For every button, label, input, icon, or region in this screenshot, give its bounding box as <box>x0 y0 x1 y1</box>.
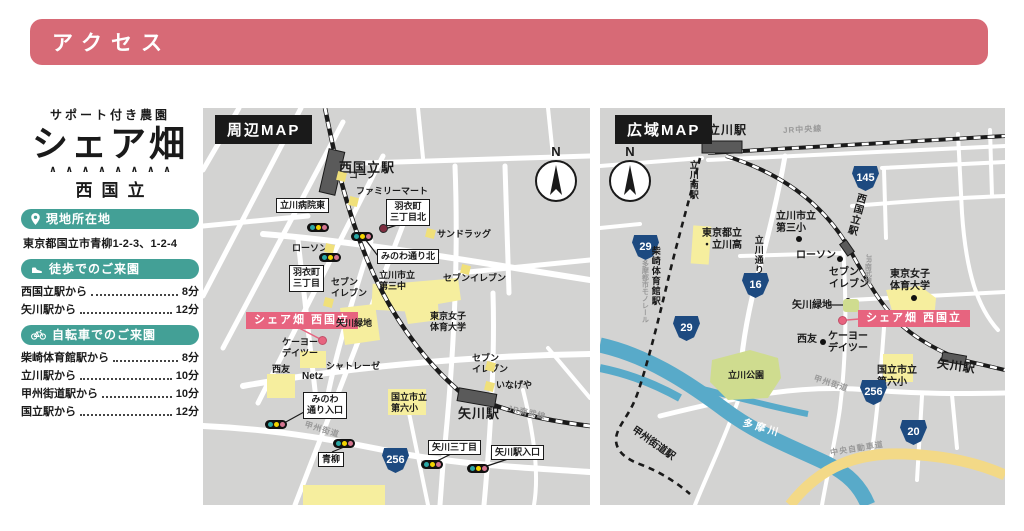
farm-address: 東京都国立市青柳1-2-3、1-2-4 <box>23 235 199 251</box>
brand-location: 西国立 <box>21 176 199 201</box>
route-shield-145: 145 <box>852 166 879 191</box>
poi-daisan-elementary: 立川市立 第三小 <box>776 211 816 235</box>
poi-chateraise: シャトレーゼ <box>326 361 380 372</box>
jr-nambu-line-label: JR南武線 <box>506 404 546 422</box>
poi-dairoku-elementary: 国立市立 第六小 <box>391 392 427 414</box>
traffic-signal <box>351 232 373 241</box>
coop-marker <box>336 171 347 182</box>
traffic-signal <box>265 420 287 429</box>
intersection-tachikawa-hospital-east: 立川病院東 <box>276 198 329 213</box>
sidebar: サポート付き農園 シェア畑 ∧∧∧∧∧∧∧∧ 西国立 現地所在地 東京都国立市青… <box>21 106 199 421</box>
local-map-title: 周辺MAP <box>215 115 312 144</box>
station-koshukaido: 甲州街道駅 <box>629 425 677 464</box>
jr-chuo-line-label: JR中央線 <box>783 124 823 136</box>
route-shield-29b: 29 <box>673 316 700 341</box>
compass-needle-icon <box>535 160 577 202</box>
route-shield-16: 16 <box>742 273 769 298</box>
bicycle-section-title: 自転車でのご来園 <box>52 326 156 343</box>
yagawa-ryokuchi-area <box>843 299 859 312</box>
intersection-minowa-entrance: みのわ 通り入口 <box>303 392 347 419</box>
poi-seiyu-wide: 西友 <box>797 334 817 346</box>
brand-decoration: ∧∧∧∧∧∧∧∧ <box>21 164 199 175</box>
seiyu-dot <box>820 339 826 345</box>
poi-yagawa-ryokuchi-wide: 矢川緑地 <box>792 300 832 312</box>
hagoromo-north-dot <box>379 224 388 233</box>
farm-type-label: サポート付き農園 <box>21 106 199 123</box>
sharebatake-dot <box>318 336 327 345</box>
compass-needle-icon <box>609 160 651 202</box>
traffic-signal <box>421 460 443 469</box>
route-shield-256: 256 <box>382 448 409 473</box>
intersection-hagoromo-3: 羽衣町 三丁目 <box>289 265 324 292</box>
poi-coop: コープ <box>349 170 375 181</box>
local-area-map: 周辺MAP N 西国立駅コープファミリーマート立川病院東ローソン羽衣町 三丁目北… <box>203 108 590 505</box>
poi-lawson-wide: ローソン <box>796 250 836 262</box>
intersection-yagawa-3: 矢川三丁目 <box>428 440 481 455</box>
walk-routes: 西国立駅から8分矢川駅から12分 <box>21 283 199 317</box>
sharebatake-badge-wide: シェア畑 西国立 <box>858 310 970 327</box>
brand-logo-text: シェア畑 <box>21 125 199 163</box>
compass: N <box>609 144 651 202</box>
compass: N <box>535 144 577 202</box>
familymart-marker <box>348 196 359 207</box>
address-section-header: 現地所在地 <box>21 209 199 229</box>
poi-tachikawa-high: 東京都立 ・立川高 <box>702 228 742 252</box>
poi-tokyo-womens-college: 東京女子 体育大学 <box>430 311 466 333</box>
route-row: 矢川駅から12分 <box>21 301 199 317</box>
poi-seveneleven-1: セブン イレブン <box>331 277 367 299</box>
station-nishikunitachi-wide: 西国立駅 <box>844 191 867 237</box>
traffic-signal <box>333 439 355 448</box>
page-title: アクセス <box>52 27 171 57</box>
poi-tokyo-womens-college-wide: 東京女子 体育大学 <box>890 269 930 293</box>
route-row: 西国立駅から8分 <box>21 283 199 299</box>
wide-map-title: 広域MAP <box>615 115 712 144</box>
tachikawa-park-label: 立川公園 <box>728 370 764 381</box>
traffic-signal <box>307 223 329 232</box>
pin-icon <box>31 213 40 225</box>
intersection-minowa-street-north: みのわ通り北 <box>377 249 439 264</box>
compass-n-label: N <box>535 144 577 159</box>
intersection-yagawa-station-entrance: 矢川駅入口 <box>491 445 544 460</box>
bicycle-icon <box>31 329 46 340</box>
address-section-title: 現地所在地 <box>46 210 111 227</box>
poi-seveneleven-2: セブンイレブン <box>443 273 506 284</box>
traffic-signal <box>319 253 341 262</box>
college-dot <box>911 295 917 301</box>
poi-familymart: ファミリーマート <box>356 186 428 197</box>
station-shibasaki-taiikukan: 柴崎体育館駅 <box>650 246 661 306</box>
tamagawa-label: 多摩川 <box>741 418 782 440</box>
poi-sundrug: サンドラッグ <box>437 229 491 240</box>
daisan-elementary-dot <box>796 236 802 242</box>
wide-area-map: 広域MAP N 立川駅JR中央線立川南駅145西国立駅JR南武線東京都立 ・立川… <box>600 108 1005 505</box>
poi-keiyo-d2: ケーヨー デイツー <box>282 337 318 359</box>
tama-monorail-label: 多摩都市モノレール <box>640 260 648 323</box>
inageya-marker <box>484 381 495 392</box>
lawson-dot <box>837 256 843 262</box>
koshu-kaido-label: 甲州街道 <box>303 420 340 440</box>
compass-n-label: N <box>609 144 651 159</box>
route-shield-256-wide: 256 <box>860 380 887 405</box>
seveneleven-1-marker <box>323 297 334 308</box>
route-row: 立川駅から10分 <box>21 367 199 383</box>
route-shield-20: 20 <box>900 420 927 445</box>
poi-keiyo-d2-wide: ケーヨー デイツー <box>828 331 868 355</box>
tachikawa-dori-label: 立川通り <box>753 235 764 275</box>
intersection-hagoromo-3-north: 羽衣町 三丁目北 <box>386 199 430 226</box>
walk-section-title: 徒歩でのご来園 <box>49 260 140 277</box>
poi-inageya: いなげや <box>496 380 532 391</box>
station-yagawa: 矢川駅 <box>458 406 500 422</box>
poi-seveneleven-wide: セブン イレブン <box>829 267 869 291</box>
station-tachikawa-minami: 立川南駅 <box>688 160 699 200</box>
chuo-expressway-label: 中央自動車道 <box>830 440 885 458</box>
poi-daisan-junior-high: 立川市立 第三中 <box>379 270 415 292</box>
bicycle-routes: 柴崎体育館駅から8分立川駅から10分甲州街道駅から10分国立駅から12分 <box>21 349 199 419</box>
bicycle-section-header: 自転車でのご来園 <box>21 325 199 345</box>
route-row: 柴崎体育館駅から8分 <box>21 349 199 365</box>
intersection-aoyagi: 青柳 <box>318 452 344 467</box>
poi-seiyu: 西友 <box>272 364 290 375</box>
sundrug-marker <box>425 228 436 239</box>
access-page: アクセス サポート付き農園 シェア畑 ∧∧∧∧∧∧∧∧ 西国立 現地所在地 東京… <box>0 0 1024 531</box>
sharebatake-dot-wide <box>838 316 847 325</box>
station-yagawa-wide: 矢川駅 <box>936 356 977 376</box>
wide-map-labels: 立川駅JR中央線立川南駅145西国立駅JR南武線東京都立 ・立川高立川市立 第三… <box>600 108 1005 505</box>
walk-section-header: 徒歩でのご来園 <box>21 259 199 279</box>
route-row: 甲州街道駅から10分 <box>21 385 199 401</box>
traffic-signal <box>467 464 489 473</box>
koshu-kaido-label-wide: 甲州街道 <box>812 374 849 394</box>
shoe-icon <box>31 264 43 274</box>
page-header: アクセス <box>30 19 988 65</box>
route-row: 国立駅から12分 <box>21 403 199 419</box>
station-tachikawa: 立川駅 <box>708 123 747 137</box>
poi-yagawa-ryokuchi: 矢川緑地 <box>336 318 372 329</box>
poi-netz: Netz <box>302 371 323 383</box>
local-map-labels: 西国立駅コープファミリーマート立川病院東ローソン羽衣町 三丁目北サンドラッグみの… <box>203 108 590 505</box>
